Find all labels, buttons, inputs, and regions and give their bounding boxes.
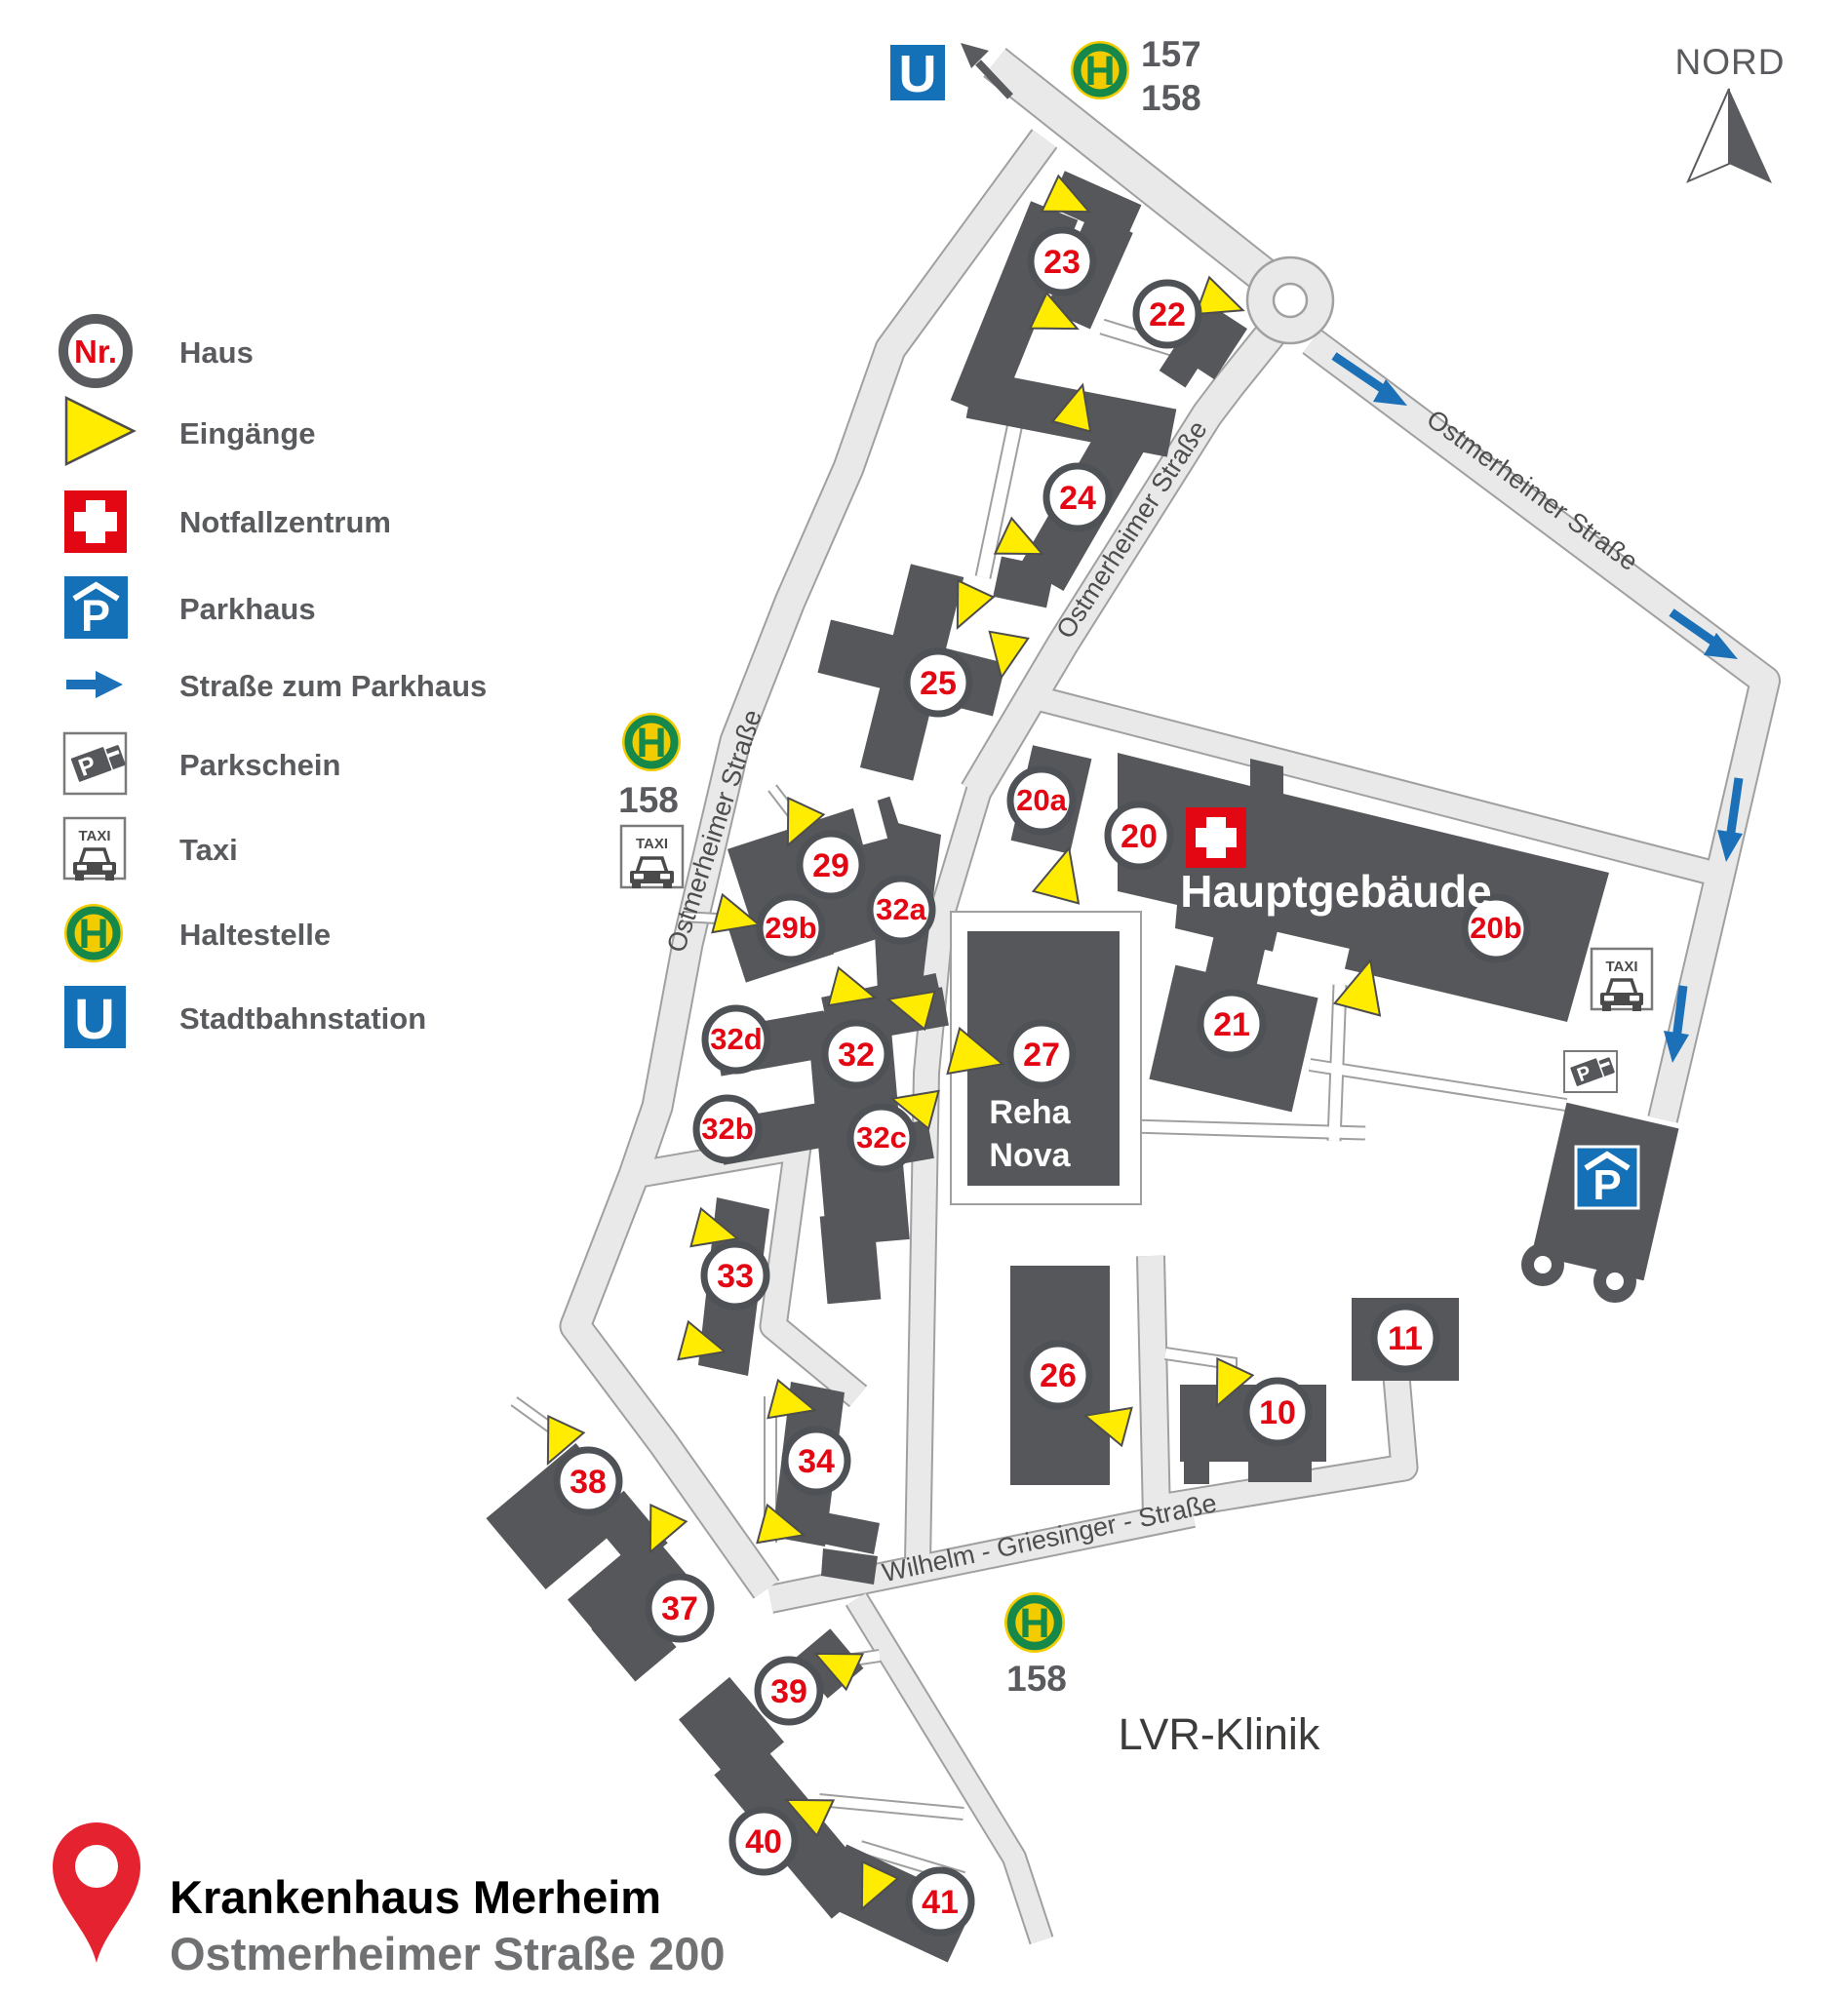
svg-text:26: 26 (1040, 1357, 1077, 1394)
svg-text:H: H (1019, 1600, 1049, 1647)
svg-text:Reha: Reha (989, 1094, 1071, 1131)
svg-text:NORD: NORD (1675, 42, 1786, 82)
svg-text:Krankenhaus Merheim: Krankenhaus Merheim (170, 1871, 661, 1923)
svg-text:40: 40 (745, 1823, 782, 1860)
svg-text:Parkschein: Parkschein (179, 748, 340, 782)
svg-text:33: 33 (717, 1258, 754, 1295)
svg-text:32d: 32d (710, 1022, 762, 1056)
svg-text:U: U (74, 988, 115, 1051)
svg-text:11: 11 (1388, 1320, 1423, 1357)
svg-text:32b: 32b (701, 1112, 753, 1146)
svg-text:Eingänge: Eingänge (179, 416, 316, 450)
svg-text:20a: 20a (1016, 783, 1067, 817)
svg-text:TAXI: TAXI (1605, 959, 1637, 975)
svg-text:Stadtbahnstation: Stadtbahnstation (179, 1001, 426, 1036)
svg-text:TAXI: TAXI (78, 828, 110, 844)
svg-text:H: H (636, 720, 666, 766)
svg-text:10: 10 (1259, 1394, 1296, 1431)
svg-text:Parkhaus: Parkhaus (179, 592, 316, 626)
svg-text:Hauptgebäude: Hauptgebäude (1180, 866, 1491, 917)
svg-text:38: 38 (570, 1464, 607, 1501)
svg-text:H: H (78, 911, 108, 958)
svg-text:37: 37 (661, 1590, 698, 1627)
svg-text:Ostmerheimer Straße 200: Ostmerheimer Straße 200 (170, 1928, 726, 1979)
svg-text:25: 25 (920, 665, 957, 702)
svg-text:29b: 29b (765, 911, 816, 945)
svg-text:U: U (899, 45, 937, 103)
svg-text:Taxi: Taxi (179, 833, 238, 867)
svg-text:LVR-Klinik: LVR-Klinik (1119, 1709, 1320, 1759)
svg-text:Straße zum Parkhaus: Straße zum Parkhaus (179, 669, 487, 703)
svg-text:TAXI: TAXI (636, 836, 668, 852)
svg-text:158: 158 (618, 780, 679, 820)
svg-text:22: 22 (1149, 296, 1186, 333)
svg-text:32a: 32a (876, 892, 926, 926)
svg-text:Nr.: Nr. (74, 333, 117, 370)
svg-text:H: H (1084, 48, 1115, 95)
svg-text:Notfallzentrum: Notfallzentrum (179, 505, 391, 539)
svg-text:157: 157 (1141, 34, 1201, 74)
svg-text:24: 24 (1059, 480, 1096, 517)
svg-text:20: 20 (1121, 818, 1158, 855)
svg-text:23: 23 (1043, 244, 1081, 281)
svg-text:27: 27 (1023, 1037, 1060, 1074)
svg-text:Nova: Nova (989, 1137, 1071, 1174)
svg-text:41: 41 (922, 1884, 959, 1921)
svg-text:Haltestelle: Haltestelle (179, 918, 331, 952)
svg-text:158: 158 (1006, 1659, 1067, 1699)
svg-text:29: 29 (812, 847, 849, 884)
svg-text:32: 32 (838, 1037, 875, 1074)
svg-text:Haus: Haus (179, 335, 254, 370)
svg-text:32c: 32c (856, 1120, 907, 1155)
svg-text:34: 34 (798, 1443, 835, 1480)
svg-text:P: P (81, 591, 110, 641)
svg-text:39: 39 (770, 1673, 807, 1710)
svg-text:158: 158 (1141, 78, 1201, 118)
svg-text:P: P (1592, 1161, 1621, 1209)
svg-text:21: 21 (1213, 1006, 1250, 1043)
